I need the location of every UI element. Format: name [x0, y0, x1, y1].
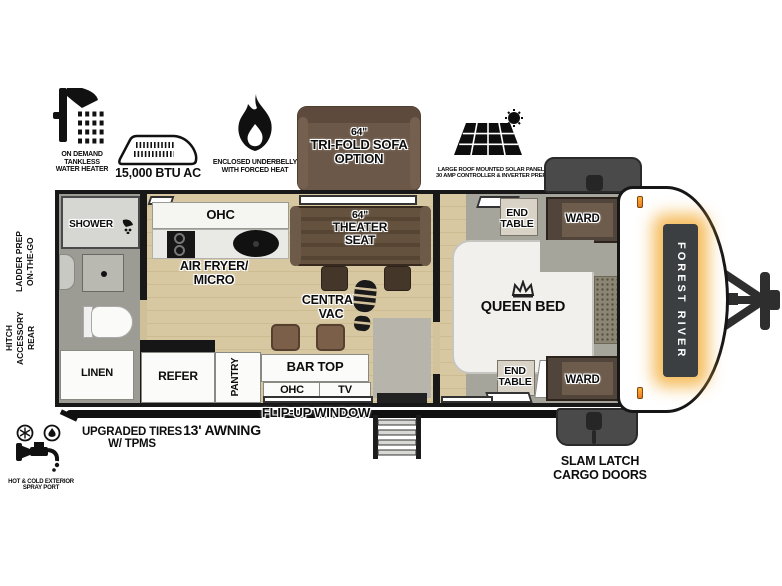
spray-port-label: HOT & COLD EXTERIOR SPRAY PORT: [0, 479, 82, 492]
end-table-bottom-label: END TABLE: [485, 366, 545, 389]
flame-icon: [226, 92, 284, 156]
queen-bed-label: QUEEN BED: [452, 300, 594, 316]
end-table-top-label: END TABLE: [487, 208, 547, 231]
rooftop-ac-icon: [116, 131, 200, 169]
entry-landing: [373, 318, 431, 398]
bathroom-doorway: [140, 300, 147, 340]
sink-drain: [253, 241, 259, 247]
cooktop: [167, 231, 195, 258]
theater-footrest: [321, 266, 348, 291]
marker-light: [637, 196, 643, 208]
shower-head-icon: [52, 86, 108, 148]
tires-label: UPGRADED TIRES W/ TPMS: [76, 426, 188, 451]
ward-top-label: WARD: [546, 213, 619, 225]
pantry-label: PANTRY: [231, 347, 245, 407]
burner: [174, 233, 185, 244]
kitchen-ohc-label: OHC: [152, 208, 289, 222]
bathroom-sink: [82, 254, 124, 292]
sofa-back: [298, 107, 420, 123]
refer-label: REFER: [141, 370, 215, 383]
bar-top-label: BAR TOP: [261, 360, 369, 374]
bar-stool: [316, 324, 345, 351]
flip-up-window: [263, 396, 373, 403]
sink-drain: [101, 271, 107, 277]
cargo-latch: [586, 175, 603, 191]
entry-steps: [370, 415, 424, 461]
theater-seat-label: 64" THEATER SEAT: [310, 210, 410, 247]
bedroom-doorway: [433, 322, 440, 374]
bathroom-shelf: [59, 254, 75, 290]
flip-window-label: FLIP-UP WINDOW: [256, 406, 376, 420]
ward-bottom-label: WARD: [546, 374, 619, 386]
burner: [174, 245, 185, 256]
trailer-body: SHOWER LINEN OHC AIR FRYER/ MICRO: [55, 190, 625, 407]
floorplan-canvas: ON DEMAND TANKLESS WATER HEATER 15,000 B…: [0, 0, 782, 586]
rear-hitch-label: REAR ACCESSORY HITCH: [4, 300, 37, 376]
ladder-prep-label: ON-THE-GO LADDER PREP: [14, 226, 36, 298]
brand-panel: FOREST RIVER: [663, 224, 698, 377]
living-window: [299, 195, 417, 205]
kitchen-sink: [233, 230, 279, 257]
shower-label: SHOWER: [61, 220, 121, 231]
cargo-latch-stem: [592, 430, 596, 444]
linen-label: LINEN: [60, 368, 134, 380]
sofa-option-label: 64" TRI-FOLD SOFA OPTION: [306, 127, 412, 166]
toilet: [91, 306, 133, 338]
spray-port-icon: [12, 424, 70, 474]
theater-arm-right: [420, 206, 431, 266]
solar-panel-icon: [450, 109, 530, 165]
shower-faucet-icon: [121, 218, 135, 234]
bed-corner-notch: [540, 240, 594, 272]
air-fryer-label: AIR FRYER/ MICRO: [155, 260, 273, 287]
bar-stool: [271, 324, 300, 351]
bedroom-window: [441, 396, 493, 403]
crown-icon: [509, 280, 537, 298]
theater-footrest: [384, 266, 411, 291]
marker-light: [637, 387, 643, 399]
cargo-latch: [586, 412, 602, 430]
cargo-doors-label: SLAM LATCH CARGO DOORS: [538, 455, 662, 482]
theater-arm-left: [290, 206, 301, 266]
sofa-icon: 64" TRI-FOLD SOFA OPTION: [297, 106, 421, 192]
entry-threshold: [377, 393, 427, 403]
cargo-door-bottom: [556, 408, 638, 446]
awning-label: 13' AWNING: [180, 423, 264, 438]
